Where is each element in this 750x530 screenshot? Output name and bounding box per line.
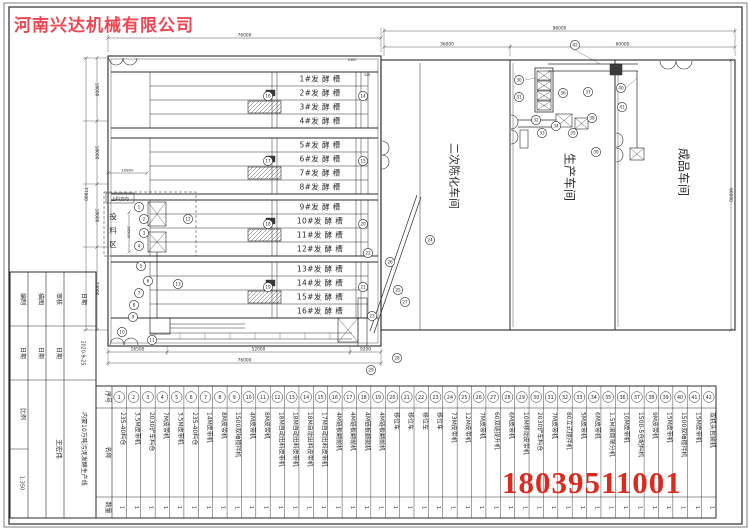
callout-number: 32: [533, 118, 539, 123]
part-name: 1500-5仓配料机: [637, 412, 645, 457]
callout-number: 17: [265, 159, 271, 164]
part-number: 5: [175, 395, 178, 401]
callout-number: 24: [427, 238, 433, 243]
part-number: 37: [634, 395, 640, 401]
callout-number: 3: [143, 231, 146, 236]
part-qty: 1: [435, 506, 441, 509]
part-name: 移位车: [407, 412, 415, 430]
tank-label: 9#发 酵 槽: [299, 202, 340, 212]
part-number: 15: [317, 395, 323, 401]
part-qty: 1: [248, 506, 254, 509]
part-number: 35: [605, 395, 611, 401]
part-name: 14M皮带机: [205, 412, 213, 443]
callout-number: 22: [365, 251, 371, 256]
tank-label: 6#发 酵 槽: [299, 154, 340, 164]
callout-number: 30: [516, 78, 522, 83]
part-name: 73M皮带机: [450, 412, 458, 443]
part-qty: 1: [320, 506, 326, 509]
elevator-symbol: [520, 130, 528, 148]
callout-number: 36: [560, 91, 566, 96]
callout-number: 40: [618, 86, 624, 91]
tank-label: 15#发 酵 槽: [297, 292, 343, 302]
title-block-cell: 日期: [80, 293, 88, 305]
dim-value: 96000: [553, 26, 567, 32]
part-number: 11: [260, 395, 266, 401]
dim-value: 18000: [94, 83, 100, 97]
callout-number: 35: [570, 131, 576, 136]
dim-value: 18000: [94, 209, 100, 223]
part-name: 18M自动出料皮带机: [292, 412, 300, 467]
plant-layout-drawing: 1#发 酵 槽2#发 酵 槽3#发 酵 槽4#发 酵 槽5#发 酵 槽6#发 酵…: [0, 0, 750, 530]
callout-number: 20: [360, 222, 366, 227]
door-arc: [382, 141, 389, 155]
door-arc: [676, 61, 692, 69]
part-number: 14: [303, 395, 309, 401]
part-name: 移位车: [435, 412, 443, 430]
dim-value: 76000: [238, 358, 252, 364]
part-number: 22: [418, 395, 424, 401]
workshop-label-production: 生产车间: [563, 153, 578, 201]
outer-frame: [4, 3, 747, 527]
dim-value: 60000: [616, 42, 630, 48]
callout-number: 11: [149, 338, 155, 343]
title-block-cell: 审核: [55, 293, 63, 305]
company-name: 河南兴达机械有限公司: [14, 11, 194, 36]
part-qty: 1: [176, 506, 182, 509]
turner-machine-symbol: [248, 101, 281, 113]
callout-number: 23: [369, 314, 375, 319]
callout-number: 19: [265, 285, 271, 290]
dim-value: 325: [364, 73, 371, 77]
part-qty: 1: [191, 506, 197, 509]
callout-number: 37: [585, 90, 591, 95]
callout-number: 1: [138, 205, 141, 210]
dim-value: 23000: [94, 282, 100, 296]
part-qty: 1: [449, 506, 455, 509]
door-arc: [660, 61, 676, 69]
part-qty: 1: [162, 506, 168, 509]
part-name: 8M皮带机: [263, 412, 271, 439]
part-number: 7: [204, 395, 207, 401]
part-name: 9M皮带机: [651, 412, 659, 439]
title-block-cell: 描图: [37, 293, 45, 305]
part-name: 6M皮带机: [594, 412, 602, 439]
feed-zone-label: 料: [109, 225, 117, 235]
title-block-cell: 内蒙10万吨污泥发酵生产线: [80, 412, 88, 486]
feed-zone-label: 区: [109, 240, 117, 249]
part-number: 40: [677, 395, 683, 401]
part-number: 3: [146, 395, 149, 401]
callout-number: 10: [119, 330, 125, 335]
title-block-cell: 日期: [19, 347, 27, 359]
tank-label: 13#发 酵 槽: [297, 264, 343, 274]
part-name: 8M皮带机: [220, 412, 228, 439]
part-name: 1500双轴搅拌机: [234, 412, 242, 457]
part-number: 25: [461, 395, 467, 401]
part-name: 1500双轴搅拌机: [680, 412, 688, 457]
part-name: 12M皮带机: [464, 412, 472, 443]
workshop-label-secondary-aging: 二次陈化车间: [447, 143, 461, 209]
part-name: 235-40料仓: [119, 412, 127, 445]
dim-value: 10800: [121, 168, 134, 173]
callout-number: 41: [619, 105, 625, 110]
tank-label: 8#发 酵 槽: [299, 182, 340, 192]
callout-number: 42: [572, 43, 578, 48]
part-qty: 1: [550, 506, 556, 509]
part-qty: 1: [205, 506, 211, 509]
callout-number: 21: [360, 285, 366, 290]
part-qty: 1: [636, 506, 642, 509]
callout-number: 39: [593, 150, 599, 155]
part-number: 24: [447, 395, 453, 401]
door-arc: [124, 338, 138, 345]
feed-direction-label: 上料方向: [111, 196, 129, 203]
feed-zone-label: 投: [109, 211, 117, 221]
callout-number: 5: [140, 264, 143, 269]
leader-line: [525, 78, 535, 80]
tank-label: 5#发 酵 槽: [299, 140, 340, 150]
part-qty: 1: [119, 506, 125, 509]
tank-label: 7#发 酵 槽: [299, 168, 340, 178]
dim-value: 18000: [94, 146, 100, 160]
tank-label: 11#发 酵 槽: [297, 230, 343, 240]
door-arc: [511, 115, 518, 129]
inner-frame: [9, 7, 742, 524]
part-number: 36: [619, 395, 625, 401]
tank-label: 3#发 酵 槽: [299, 102, 340, 112]
callout-number: 29: [368, 368, 374, 373]
leader-line: [626, 78, 637, 88]
dim-value: 4400: [348, 58, 357, 62]
part-number: 38: [648, 395, 654, 401]
part-name: 移位车: [421, 412, 429, 430]
dim-value: 52000: [252, 347, 266, 353]
workshop-label-finished: 成品车间: [677, 148, 692, 196]
callout-number: 31: [516, 95, 522, 100]
part-qty: 1: [665, 506, 671, 509]
title-block-cell: 日期: [55, 347, 63, 359]
part-name: 3.5M皮带机: [177, 412, 185, 445]
callout-number: 2: [143, 217, 146, 222]
part-number: 10: [246, 395, 252, 401]
part-qty: 1: [392, 506, 398, 509]
part-qty: 1: [579, 506, 585, 509]
part-number: 9: [233, 395, 236, 401]
part-number: 34: [591, 395, 597, 401]
part-number: 19: [375, 395, 381, 401]
turner-machine-symbol: [248, 167, 281, 179]
part-name: 10M移动皮带机: [522, 412, 530, 455]
turner-machine-symbol: [248, 229, 281, 241]
part-name: 3.5M皮带机: [133, 412, 141, 445]
tank-label: 16#发 酵 槽: [297, 306, 343, 316]
title-block-cell: 2020-9-25: [79, 341, 85, 366]
part-qty: 1: [565, 506, 571, 509]
part-qty: 1: [622, 506, 628, 509]
part-qty: 1: [219, 506, 225, 509]
tank-label: 1#发 酵 槽: [299, 74, 340, 84]
part-number: 39: [663, 395, 669, 401]
part-qty: 1: [234, 506, 240, 509]
callout-number: 28: [394, 356, 400, 361]
part-name: 5M皮带机: [579, 412, 587, 439]
callout-number: 25: [395, 288, 401, 293]
part-qty: 1: [277, 506, 283, 509]
title-block-cell: 比例: [19, 408, 27, 420]
callout-number: 6: [147, 279, 150, 284]
part-name: 7M皮带机: [479, 412, 487, 439]
callout-number: 15: [360, 159, 366, 164]
part-name: 2030铲车料仓: [536, 412, 544, 451]
part-qty: 1: [363, 506, 369, 509]
part-qty: 1: [708, 506, 714, 509]
part-number: 4: [161, 395, 164, 401]
callout-number: 27: [402, 300, 408, 305]
callout-number: 8: [133, 303, 136, 308]
part-name: 6M皮带机: [507, 412, 515, 439]
callout-number: 9: [132, 315, 135, 320]
title-block-cell: 日期: [37, 347, 45, 359]
callout-number: 33: [539, 131, 545, 136]
dim-value: 60000: [728, 188, 734, 202]
tank-hall-wall: [108, 56, 381, 346]
part-number: 31: [548, 395, 554, 401]
callout-number: 18: [265, 222, 271, 227]
callout-number: 13: [175, 282, 181, 287]
part-name: 60双链提升机: [493, 412, 501, 450]
part-qty: 1: [536, 506, 542, 509]
part-qty: 1: [608, 506, 614, 509]
callout-number: 4: [138, 244, 141, 249]
part-number: 27: [490, 395, 496, 401]
part-qty: 1: [406, 506, 412, 509]
part-qty: 1: [680, 506, 686, 509]
part-qty: 1: [263, 506, 269, 509]
hopper-symbol: [150, 318, 170, 334]
part-qty: 1: [478, 506, 484, 509]
part-number: 2: [132, 395, 135, 401]
part-number: 20: [389, 395, 395, 401]
door-arc: [616, 148, 623, 162]
part-number: 18: [361, 395, 367, 401]
part-name: 4M链板翻抛机: [364, 412, 372, 451]
part-name: 2030铲车料仓: [148, 412, 156, 451]
part-number: 29: [519, 395, 525, 401]
parts-header-index: 序号: [104, 391, 112, 403]
drawing-sheet: 1#发 酵 槽2#发 酵 槽3#发 酵 槽4#发 酵 槽5#发 酵 槽6#发 酵…: [0, 0, 750, 530]
part-number: 23: [433, 395, 439, 401]
part-number: 26: [476, 395, 482, 401]
door-arc: [382, 155, 389, 169]
part-name: 235-40料仓: [191, 412, 199, 445]
part-name: 10M皮带机: [622, 412, 630, 443]
door-arc: [110, 338, 124, 345]
turner-machine-symbol: [248, 291, 281, 303]
part-qty: 1: [694, 506, 700, 509]
dim-value: 76000: [238, 33, 252, 39]
dim-value: 16500: [131, 347, 145, 353]
leader-line: [575, 50, 600, 64]
part-name: 1.5M滚筒筛分机: [608, 412, 616, 457]
part-qty: 1: [507, 506, 513, 509]
part-name: 18M自动出料皮带机: [277, 412, 285, 467]
part-qty: 1: [378, 506, 384, 509]
callout-number: 12: [185, 217, 191, 222]
part-number: 6: [190, 395, 193, 401]
door-arc: [511, 130, 518, 144]
callout-number: 26: [387, 260, 393, 265]
part-qty: 1: [521, 506, 527, 509]
part-number: 42: [706, 395, 712, 401]
part-number: 30: [533, 395, 539, 401]
part-number: 17: [346, 395, 352, 401]
part-name: 7M皮带机: [162, 412, 170, 439]
part-qty: 1: [133, 506, 139, 509]
part-qty: 1: [493, 506, 499, 509]
part-number: 12: [274, 395, 280, 401]
tank-label: 12#发 酵 槽: [297, 244, 343, 254]
part-name: 17M自动出料皮带机: [320, 412, 328, 467]
part-name: 15M皮带机: [694, 412, 702, 443]
part-number: 32: [562, 395, 568, 401]
shuttle-symbol: [358, 298, 367, 346]
part-qty: 1: [349, 506, 355, 509]
callout-number: 16: [265, 94, 271, 99]
part-name: 双机头包装机: [709, 412, 717, 448]
dim-value: 36000: [440, 42, 454, 48]
part-number: 28: [504, 395, 510, 401]
dim-value: 9200: [360, 347, 371, 353]
part-name: 4M链板翻抛机: [349, 412, 357, 451]
part-name: 4M皮带机: [249, 412, 257, 439]
dim-value: 77000: [83, 187, 89, 201]
title-block-cell: 编制: [19, 293, 27, 305]
packer-symbol: [610, 64, 622, 75]
callout-number: 34: [553, 124, 559, 129]
tank-label: 14#发 酵 槽: [297, 278, 343, 288]
part-number: 8: [218, 395, 221, 401]
part-number: 13: [289, 395, 295, 401]
dim-value: 18500: [127, 226, 132, 239]
parts-header-name: 名称: [104, 446, 112, 458]
part-name: 80立式搅拌机: [565, 412, 573, 450]
part-qty: 1: [464, 506, 470, 509]
callout-number: 38: [589, 116, 595, 121]
part-qty: 1: [421, 506, 427, 509]
part-name: 移位车: [392, 412, 400, 430]
part-name: 4M链板翻抛机: [378, 412, 386, 451]
part-name: 18M自动出料皮带机: [306, 412, 314, 467]
part-qty: 1: [334, 506, 340, 509]
part-number: 41: [691, 395, 697, 401]
door-arc: [616, 133, 623, 147]
part-qty: 1: [593, 506, 599, 509]
tank-label: 4#发 酵 槽: [299, 116, 340, 126]
part-number: 1: [118, 395, 121, 401]
parts-header-qty: 数量: [104, 501, 112, 513]
callout-number: 7: [138, 291, 141, 296]
phone-number: 18039511001: [502, 465, 682, 501]
title-block-cell: 王宏伟: [55, 439, 64, 459]
tank-label: 10#发 酵 槽: [297, 216, 343, 226]
tank-label: 2#发 酵 槽: [299, 88, 340, 98]
part-name: 7M皮带机: [551, 412, 559, 439]
callout-number: 14: [360, 94, 366, 99]
part-number: 16: [332, 395, 338, 401]
part-name: 15M皮带机: [666, 412, 674, 443]
part-qty: 1: [291, 506, 297, 509]
part-qty: 1: [306, 506, 312, 509]
part-qty: 1: [651, 506, 657, 509]
part-number: 33: [576, 395, 582, 401]
part-name: 4M链板翻抛机: [335, 412, 343, 451]
part-qty: 1: [147, 506, 153, 509]
part-number: 21: [404, 395, 410, 401]
title-block-cell: 1:350: [19, 476, 25, 490]
